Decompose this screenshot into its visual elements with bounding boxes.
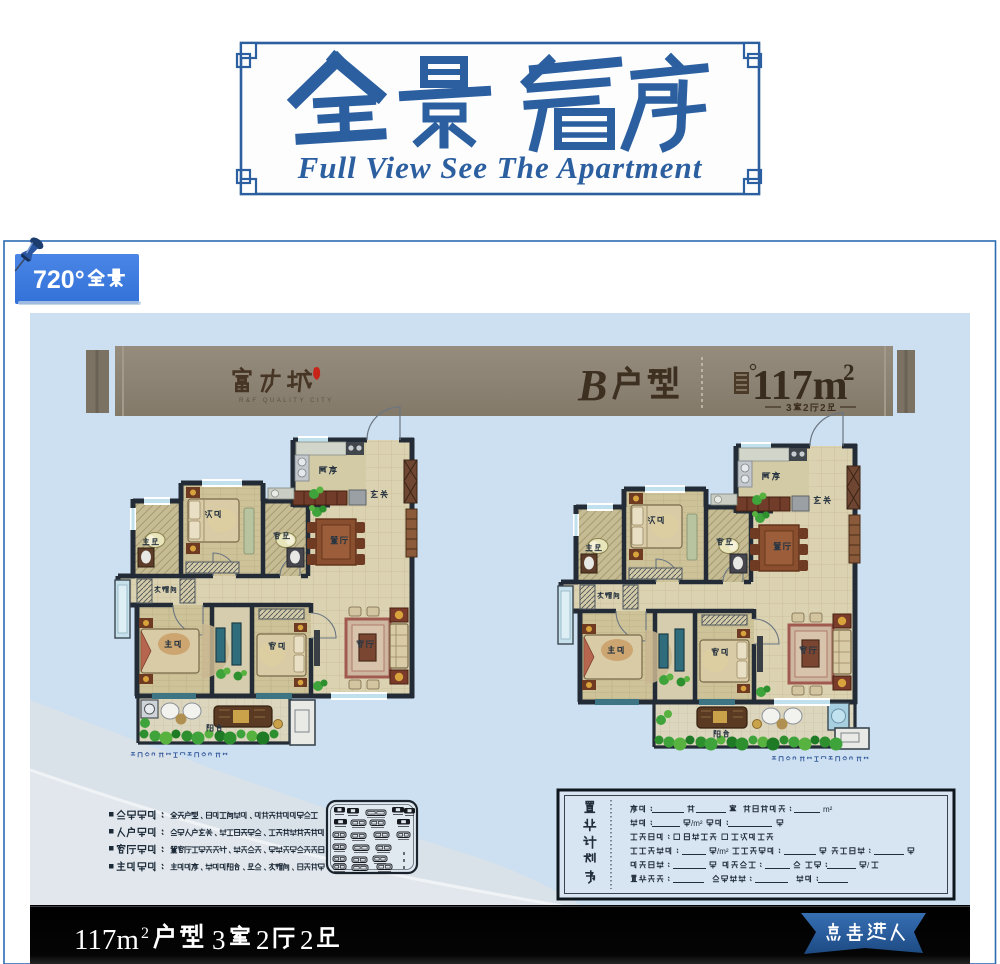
svg-text:2: 2	[803, 403, 809, 414]
svg-text:3: 3	[786, 403, 792, 414]
svg-text:2: 2	[300, 925, 314, 955]
svg-text:2: 2	[820, 403, 826, 414]
svg-text:R&F QUALITY CITY: R&F QUALITY CITY	[239, 397, 334, 404]
svg-text:/m²: /m²	[717, 847, 729, 856]
svg-text:2: 2	[256, 925, 270, 955]
svg-text:117m: 117m	[752, 363, 848, 409]
svg-text:B: B	[577, 361, 607, 410]
svg-text:117m: 117m	[74, 924, 139, 956]
svg-text:Full View See The Apartment: Full View See The Apartment	[297, 150, 703, 185]
svg-text:720°: 720°	[33, 266, 85, 294]
svg-text:m²: m²	[823, 805, 833, 814]
svg-text:/m²: /m²	[691, 819, 703, 828]
svg-text:2: 2	[141, 925, 149, 942]
svg-text:2: 2	[843, 360, 855, 385]
svg-text:3: 3	[212, 925, 226, 955]
